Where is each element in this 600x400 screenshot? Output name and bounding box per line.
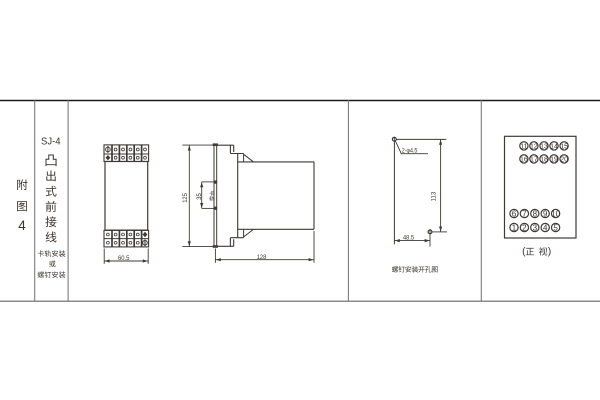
- svg-text:4: 4: [18, 218, 26, 233]
- svg-text:6: 6: [512, 209, 517, 218]
- svg-text:8: 8: [533, 209, 538, 218]
- svg-text:35: 35: [197, 193, 203, 200]
- svg-text:16: 16: [520, 156, 528, 163]
- svg-text:19: 19: [550, 156, 558, 163]
- svg-text:15: 15: [560, 143, 568, 150]
- svg-text:60.5: 60.5: [118, 256, 130, 262]
- svg-text:4: 4: [543, 223, 548, 232]
- svg-text:2-φ4.5: 2-φ4.5: [402, 148, 418, 154]
- svg-text:11: 11: [520, 143, 527, 150]
- svg-text:9: 9: [543, 209, 548, 218]
- svg-text:17: 17: [530, 156, 538, 163]
- svg-text:113: 113: [431, 191, 437, 201]
- svg-text:1: 1: [512, 223, 517, 232]
- svg-text:5: 5: [553, 223, 558, 232]
- svg-text:7: 7: [522, 209, 527, 218]
- svg-text:12: 12: [530, 143, 538, 150]
- svg-text:): ): [548, 247, 551, 258]
- svg-text:18: 18: [540, 156, 548, 163]
- svg-text:2: 2: [522, 223, 527, 232]
- svg-text:SJ-4: SJ-4: [41, 137, 61, 148]
- svg-text:13: 13: [540, 143, 548, 150]
- svg-text:48.5: 48.5: [403, 235, 415, 241]
- svg-text:3: 3: [533, 223, 538, 232]
- svg-text:20: 20: [560, 156, 568, 163]
- svg-text:14: 14: [550, 143, 558, 150]
- svg-text:128: 128: [257, 255, 267, 261]
- svg-text:10: 10: [551, 209, 560, 218]
- svg-text:125: 125: [183, 193, 189, 203]
